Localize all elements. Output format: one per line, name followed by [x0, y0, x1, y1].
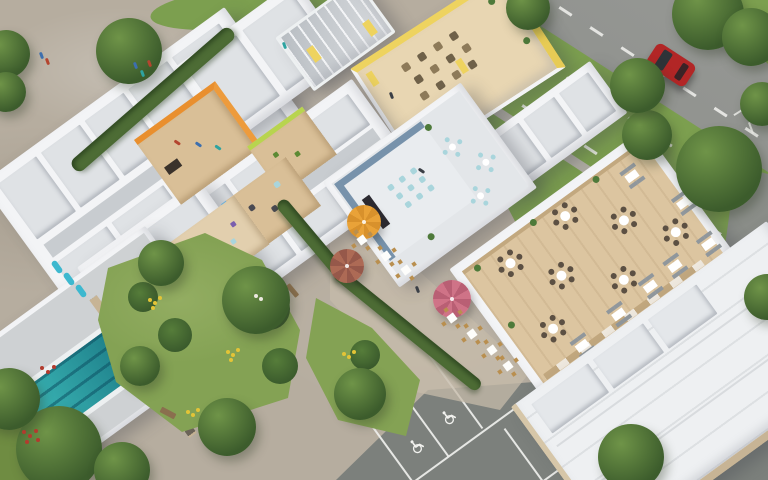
lounge-pillar	[366, 71, 380, 87]
flower-cluster	[342, 352, 346, 356]
flower-cluster	[254, 294, 258, 298]
umbrella-terracotta	[330, 249, 364, 283]
chair	[230, 238, 237, 245]
chair	[230, 221, 237, 228]
tree	[198, 398, 256, 456]
cinema-seats	[387, 183, 395, 191]
flower-cluster	[226, 350, 230, 354]
tree	[222, 266, 290, 334]
plant	[487, 0, 497, 6]
tree	[676, 126, 762, 212]
piano	[164, 158, 182, 175]
tree	[120, 346, 160, 386]
person	[174, 139, 181, 145]
salon-chair	[248, 204, 256, 212]
flower-cluster	[22, 430, 26, 434]
bush	[158, 318, 192, 352]
person	[195, 141, 202, 147]
armchair-grid	[401, 62, 412, 73]
lounge-pillar	[455, 58, 469, 74]
flower-cluster	[148, 298, 152, 302]
flower-cluster	[40, 366, 44, 370]
chair	[294, 150, 301, 157]
aerial-rendering	[0, 0, 768, 480]
flower-cluster	[186, 410, 190, 414]
chair	[272, 151, 279, 158]
tree	[622, 110, 672, 160]
tree	[610, 58, 665, 113]
umbrella-orange	[347, 205, 381, 239]
person	[214, 144, 221, 150]
salon-chair	[273, 180, 281, 188]
bush	[350, 340, 380, 370]
car-rear-window	[674, 62, 690, 81]
plant	[522, 36, 532, 46]
tree	[138, 240, 184, 286]
bush	[128, 282, 158, 312]
tree	[334, 368, 386, 420]
person	[418, 168, 425, 174]
bush	[262, 348, 298, 384]
tree	[96, 18, 162, 84]
